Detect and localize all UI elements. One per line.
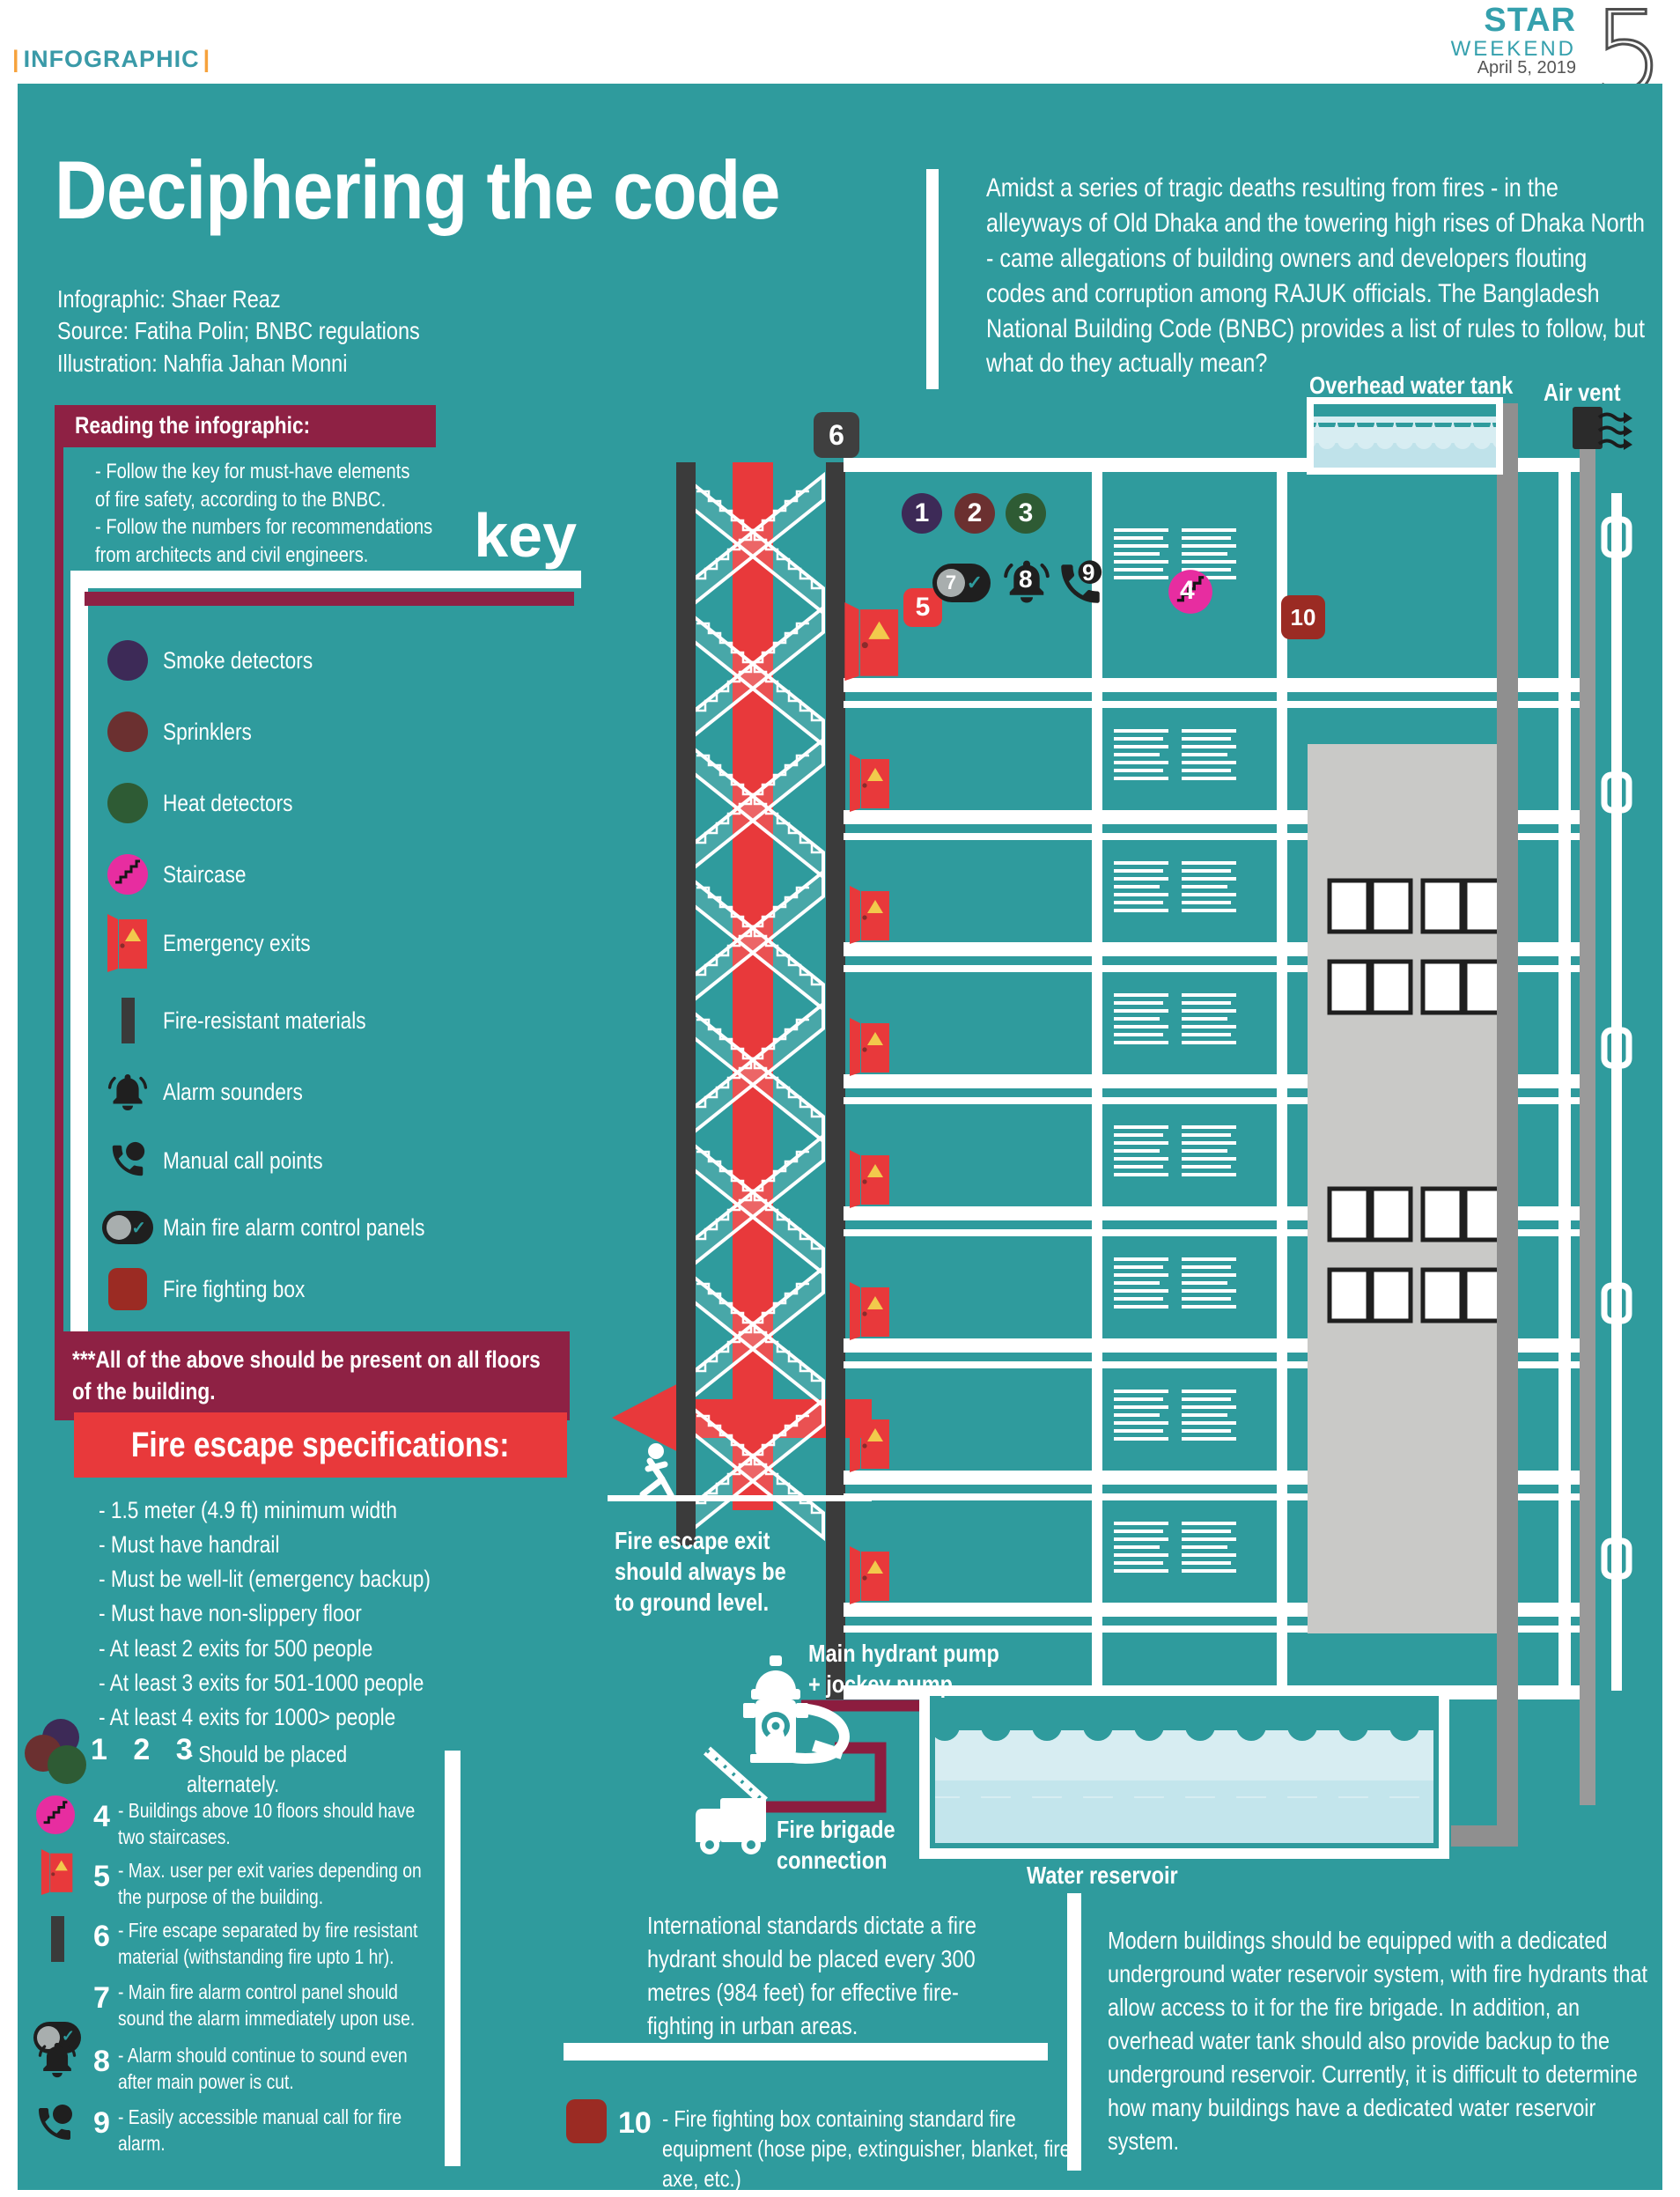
note8-text: - Alarm should continue to sound even af… <box>118 2043 444 2096</box>
fire-escape-specs-box: Fire escape specifications: <box>74 1412 567 1478</box>
fire-escape-specs-title: Fire escape specifications: <box>131 1426 510 1465</box>
key-item-sprinklers: Sprinklers <box>92 707 269 756</box>
note6-badge: 6 <box>93 1920 110 1954</box>
call-point-icon <box>107 1140 148 1181</box>
note4-text: - Buildings above 10 floors should have … <box>118 1798 444 1851</box>
water-reservoir <box>925 1691 1444 1854</box>
note6-icon <box>51 1916 64 1962</box>
air-vent-label: Air vent <box>1544 377 1621 408</box>
fire-resistant-bar-icon <box>122 998 135 1043</box>
credits: Infographic: Shaer Reaz Source: Fatiha P… <box>57 284 489 380</box>
marker-control-panel: 7 ✓ <box>932 564 991 602</box>
note8-badge: 8 <box>93 2045 110 2079</box>
key-item-smoke-detectors: Smoke detectors <box>92 636 342 685</box>
smoke-detector-icon <box>107 640 148 681</box>
reservoir-paragraph: Modern buildings should be equipped with… <box>1108 1924 1655 2159</box>
key-heading: key <box>387 500 577 571</box>
marker-fire-box: 10 <box>1281 595 1325 639</box>
key-item-fire-fighting-box: Fire fighting box <box>92 1264 332 1314</box>
notes-divider-bar <box>445 1751 461 2166</box>
fire-resistant-pillar <box>676 462 696 1545</box>
staircase-icon <box>107 853 149 896</box>
note7-text: - Main fire alarm control panel should s… <box>118 1980 444 2032</box>
fire-escape-specs-list: - 1.5 meter (4.9 ft) minimum width - Mus… <box>99 1493 494 1735</box>
intro-paragraph: Amidst a series of tragic deaths resulti… <box>986 171 1652 381</box>
overhead-water-tank <box>1310 401 1499 471</box>
masthead-brand: STAR WEEKEND <box>1451 4 1576 60</box>
orange-pipe-icon: | <box>200 46 215 72</box>
note9-text: - Easily accessible manual call for fire… <box>118 2105 444 2157</box>
credit-line: Source: Fatiha Polin; BNBC regulations <box>57 315 420 347</box>
overhead-tank-label: Overhead water tank <box>1309 370 1513 401</box>
emergency-exit-icon <box>107 914 149 972</box>
building-right-wall <box>1558 458 1571 1692</box>
section-label: |INFOGRAPHIC| <box>9 46 214 73</box>
credit-line: Infographic: Shaer Reaz <box>57 284 420 315</box>
sprinkler-icon <box>107 711 148 752</box>
flanged-pipe <box>1604 493 1629 1691</box>
air-vent-pipe <box>1580 447 1595 1805</box>
reading-box-title: Reading the infographic: <box>75 412 310 439</box>
note5-badge: 5 <box>93 1860 110 1894</box>
key-item-staircase: Staircase <box>92 850 262 899</box>
key-footnote: ***All of the above should be present on… <box>55 1331 570 1420</box>
note5-text: - Max. user per exit varies depending on… <box>118 1858 444 1911</box>
fire-escape-exit-note: Fire escape exit should always be to gro… <box>615 1525 786 1618</box>
water-reservoir-label: Water reservoir <box>1027 1860 1178 1891</box>
note8-icon <box>37 2039 77 2080</box>
ground-line <box>608 1495 872 1501</box>
marker-sprinkler: 2 <box>954 493 995 534</box>
brand-star: STAR <box>1451 4 1576 37</box>
key-left-bar <box>70 571 88 1398</box>
infographic-page: |INFOGRAPHIC| STAR WEEKEND April 5, 2019… <box>0 0 1680 2197</box>
fire-brigade-label: Fire brigade connection <box>777 1814 895 1876</box>
control-panel-toggle-icon: ✓ <box>102 1211 153 1244</box>
marker-staircase: 4 <box>1168 569 1213 615</box>
note4-badge: 4 <box>93 1800 110 1834</box>
intro-divider-bar <box>926 169 939 389</box>
masthead-date: April 5, 2019 <box>1477 58 1576 78</box>
note9-badge: 9 <box>93 2106 110 2141</box>
note6-text: - Fire escape separated by fire resistan… <box>118 1918 444 1971</box>
hydrant-standard-paragraph: International standards dictate a fire h… <box>647 1909 1002 2043</box>
fire-truck-icon <box>696 1751 766 1854</box>
page-title: Deciphering the code <box>55 143 780 238</box>
key-top-bar-white <box>70 571 581 588</box>
maroon-accent-bar <box>55 405 63 1398</box>
hydrant-label: Main hydrant pump + jockey pump <box>808 1638 999 1699</box>
key-item-heat-detectors: Heat detectors <box>92 778 318 828</box>
fire-resistant-wall <box>826 462 845 1699</box>
key-item-control-panels: ✓ Main fire alarm control panels <box>92 1203 475 1252</box>
note-badges-123: 1 2 3 <box>91 1733 202 1767</box>
reservoir-divider-bar <box>1067 1893 1081 2171</box>
brand-weekend: WEEKEND <box>1451 39 1576 60</box>
note-123-text: - Should be placed alternately. <box>187 1740 438 1800</box>
air-vent-icon <box>1573 407 1632 450</box>
note5-icon <box>41 1849 74 1895</box>
fire-fighting-box-icon <box>108 1268 147 1310</box>
note4-icon <box>35 1795 76 1835</box>
note10-badge: 10 <box>618 2106 652 2141</box>
marker-call-point: 9 <box>1055 558 1106 609</box>
note10-text: - Fire fighting box containing standard … <box>662 2105 1076 2193</box>
marker-fire-resistant: 6 <box>814 412 859 458</box>
orange-pipe-icon: | <box>9 46 24 72</box>
detectors-cluster-icon <box>25 1719 88 1782</box>
note9-icon <box>33 2103 76 2145</box>
running-person-icon <box>643 1443 672 1497</box>
key-item-emergency-exits: Emergency exits <box>92 918 339 968</box>
key-top-bar-maroon <box>85 592 574 606</box>
alarm-bell-icon <box>107 1071 149 1113</box>
note7-badge: 7 <box>93 1981 110 2016</box>
marker-alarm: 8 <box>1002 557 1051 606</box>
heat-detector-icon <box>107 783 148 823</box>
exit-arrow-icon <box>612 1379 687 1456</box>
mid-divider-bar <box>564 2043 1048 2061</box>
key-item-alarm-sounders: Alarm sounders <box>92 1067 329 1117</box>
marker-smoke: 1 <box>902 493 942 534</box>
note10-icon <box>566 2099 607 2143</box>
key-item-fire-resistant: Fire-resistant materials <box>92 996 405 1045</box>
credit-line: Illustration: Nahfia Jahan Monni <box>57 348 420 380</box>
key-item-manual-call-points: Manual call points <box>92 1136 353 1185</box>
marker-heat: 3 <box>1006 493 1046 534</box>
